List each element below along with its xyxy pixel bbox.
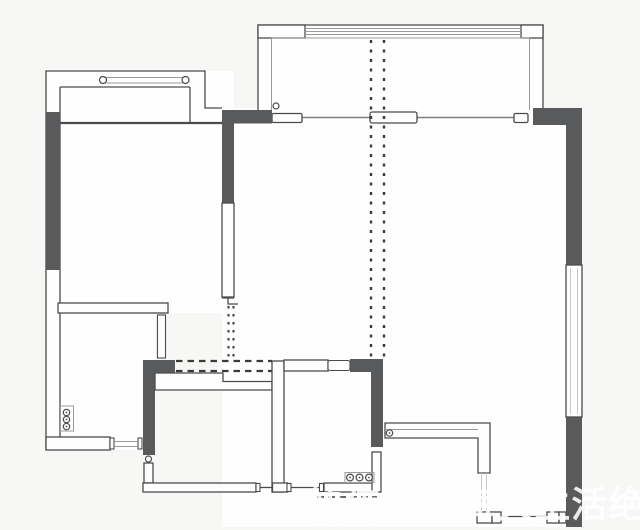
right-wall-window-icon [566,265,582,417]
living-room-left-wall [222,203,234,297]
door-hinge-icon [146,456,152,462]
floor-plan-svg [0,0,640,530]
exterior-wall-left [46,112,60,270]
utility-bottom-wall [46,437,110,450]
bathroom-top-wall [284,360,328,371]
door-hinge-icon [273,103,279,109]
bedroom-bottom-wall [58,303,168,313]
stove-fixture-icon [345,473,374,483]
kitchen-bathroom-partition [272,361,284,492]
bathroom-door-panel-icon [328,361,350,371]
bedroom-door-leaf-icon [158,315,166,358]
floor-plan-image: 快传号 / 每天生活绝招 [0,0,640,530]
